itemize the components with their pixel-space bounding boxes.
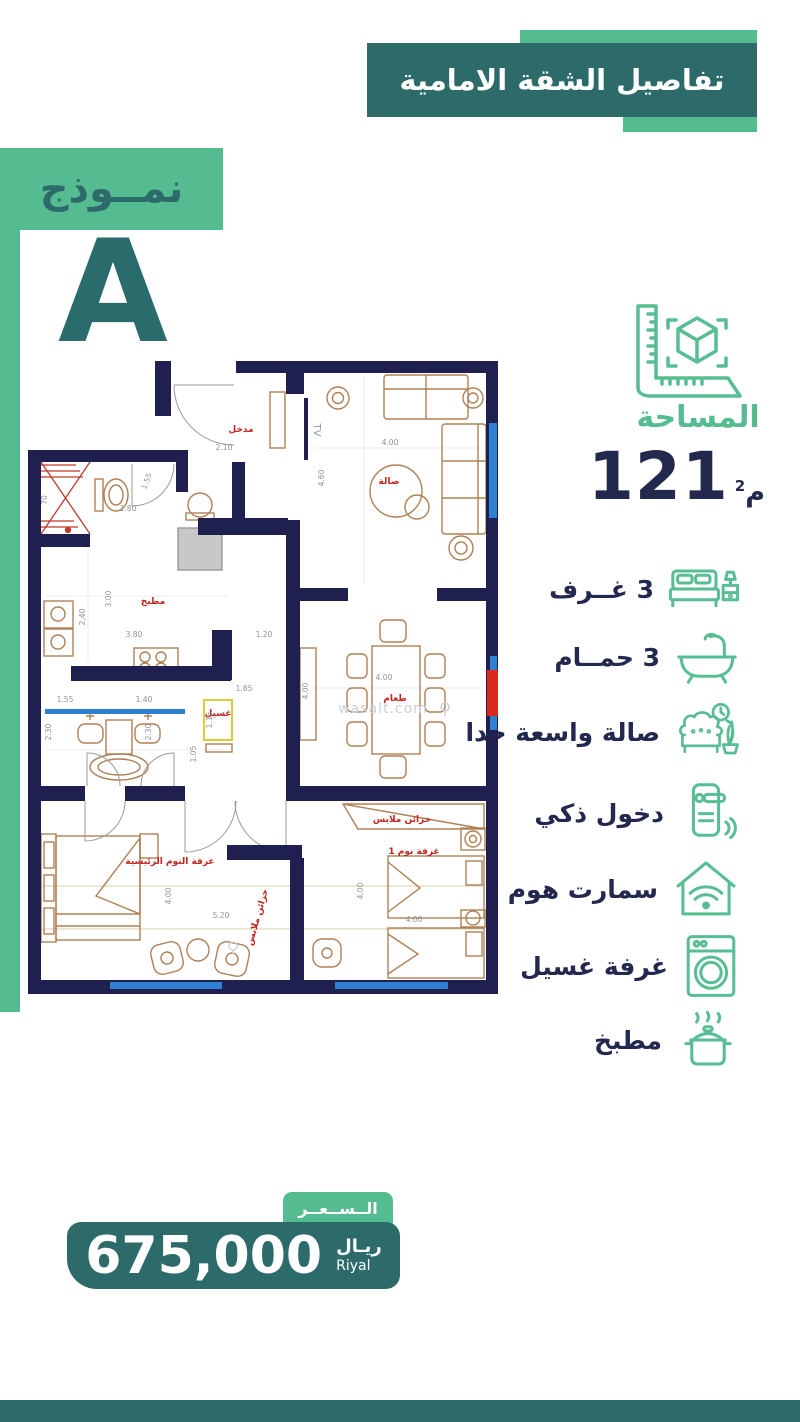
room-label-entrance: مدخل (228, 425, 253, 435)
feature-item: غرفة غسيل (520, 933, 740, 999)
shaft-size: 70 (40, 495, 49, 505)
closet-label: خزائن ملابس (245, 888, 271, 947)
dim: 2.40 (78, 608, 87, 625)
dim: 1.80 (120, 504, 137, 513)
room-label-kitchen: مطبخ (141, 597, 166, 607)
dim: 4.00 (406, 915, 423, 924)
feature-item: مطبخ (594, 1010, 740, 1070)
floor-plan: مدخل صالة مطبخ طعام غسيل خزائن ملابس خزا… (28, 358, 503, 1006)
dim: 1.55 (57, 695, 74, 704)
header-accent-top (520, 30, 757, 44)
dim: 1.15 (205, 711, 214, 728)
room-label-master-bedroom: غرفة النوم الرئيسية (125, 857, 214, 867)
washing-machine-icon (682, 933, 740, 999)
room-label-bedroom1: غرفة نوم 1 (388, 847, 439, 857)
dim: 1.55 (140, 472, 154, 491)
ac-unit (487, 670, 498, 716)
left-accent-bar (0, 230, 20, 1012)
room-label-hall: صالة (379, 477, 400, 487)
area-ruler-icon (626, 304, 744, 412)
dim: 2.30 (144, 723, 153, 740)
feature-item: دخول ذكي (534, 780, 740, 846)
currency-english: Riyal (336, 1258, 382, 1274)
dim: 2.30 (44, 723, 53, 740)
footer-accent-bar (0, 1400, 800, 1422)
dim: 1.05 (189, 745, 198, 762)
dim: 5.20 (213, 911, 230, 920)
closet-label: خزائن ملابس (373, 815, 431, 825)
header-accent-bottom (623, 116, 757, 132)
currency-arabic: ريـال (336, 1237, 382, 1258)
bed-icon (668, 560, 740, 618)
price-label: الــســعــر (298, 1199, 378, 1218)
feature-label: سمارت هوم (508, 875, 658, 904)
feature-label: مطبخ (594, 1026, 662, 1055)
feature-item: 3 غــرف (549, 560, 740, 618)
feature-label: دخول ذكي (534, 799, 664, 828)
price-box: 675,000 ريـال Riyal (67, 1222, 400, 1289)
dim: 4.60 (317, 469, 326, 486)
dim: 4.00 (356, 882, 365, 899)
dim: 1.40 (136, 695, 153, 704)
sofa-icon (674, 700, 740, 764)
svg-text:wasalt.com: wasalt.com (338, 701, 428, 717)
feature-label: 3 غــرف (549, 575, 654, 604)
model-label: نمــوذج (40, 166, 184, 212)
model-letter: A (58, 222, 168, 364)
cooking-pot-icon (676, 1010, 740, 1070)
feature-item: 3 حمــام (554, 628, 740, 686)
dim: 2.10 (216, 443, 233, 452)
dim: 4.00 (301, 682, 310, 699)
dim: 4.00 (382, 438, 399, 447)
area-label: المساحة (608, 400, 788, 435)
page-title: تفاصيل الشقة الامامية (367, 43, 757, 117)
feature-item: سمارت هوم (508, 858, 740, 920)
area-unit: م2 (735, 477, 765, 508)
dim: 4.00 (376, 673, 393, 682)
windows (45, 423, 498, 989)
smart-lock-icon (678, 780, 740, 846)
price-value: 675,000 (85, 1230, 322, 1282)
smart-home-icon (672, 858, 740, 920)
dim: 3.80 (126, 630, 143, 639)
feature-item: صالة واسعة جدا (466, 700, 741, 764)
feature-label: 3 حمــام (554, 643, 660, 672)
area-value: 121 م2 (588, 444, 800, 510)
guide-lines (44, 374, 484, 750)
tv-label: TV (311, 423, 322, 437)
price-tab: الــســعــر (283, 1192, 393, 1224)
dim: 3.00 (104, 590, 113, 607)
page-title-text: تفاصيل الشقة الامامية (399, 63, 724, 97)
area-number: 121 (588, 444, 729, 510)
currency: ريـال Riyal (336, 1237, 382, 1274)
feature-label: غرفة غسيل (520, 952, 668, 981)
dim: 1.20 (256, 630, 273, 639)
dim: 4.00 (164, 887, 173, 904)
dim: 1.85 (236, 684, 253, 693)
bathtub-icon (674, 628, 740, 686)
